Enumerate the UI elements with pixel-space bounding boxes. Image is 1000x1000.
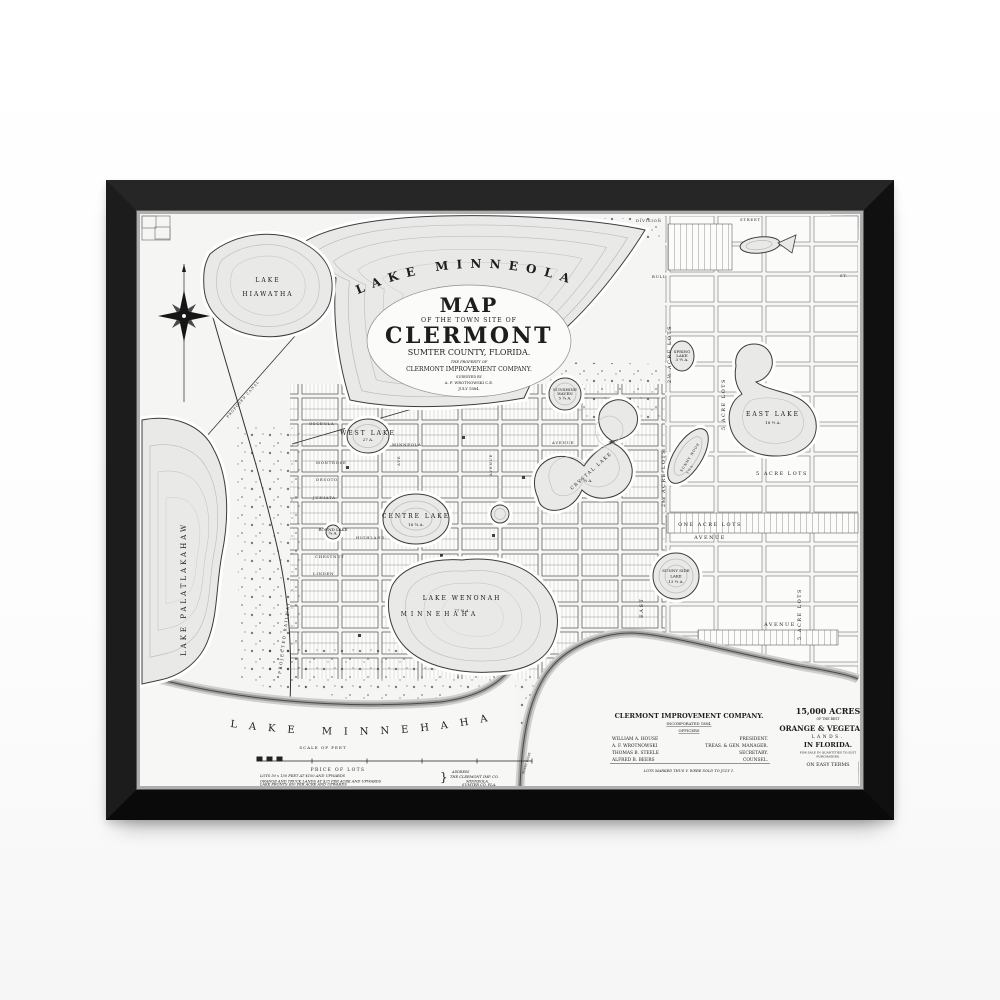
lake-hiawatha-label-1: LAKE: [255, 277, 280, 284]
scale-of-feet-label: SCALE OF FEET: [299, 745, 346, 750]
sunny-side-label-2: LAKE: [670, 574, 682, 579]
company-officers-label: OFFICERS: [678, 728, 699, 733]
price-of-lots-label: PRICE OF LOTS: [311, 768, 366, 773]
address-line-3: SUMTER CO. FLA.: [462, 783, 496, 786]
street-juniata: JUNIATA: [312, 495, 336, 500]
street-division: DIVISION: [636, 218, 662, 223]
officer-title-2: SECRETARY.: [739, 751, 768, 756]
address-label: ADDRESS: [451, 770, 470, 774]
title-surveyor: A. F. WROTNOWSKI C.E.: [444, 380, 493, 385]
lake-hiawatha-label-2: HIAWATHA: [242, 291, 293, 298]
title-surveyed-by: SURVEYED BY: [456, 375, 482, 379]
sunny-side-acres: 13 ½ A.: [668, 579, 684, 584]
street-bull-st: ST.: [840, 273, 848, 278]
lake-wenonah-label: LAKE WENONAH: [423, 595, 502, 602]
west-lake: WEST LAKE 27 A.: [340, 419, 396, 453]
avenue-label-2: AVENUE: [763, 622, 796, 628]
picture-frame: LAKE MINNEOLA LAKE HIAWATHA MAP OF THE T…: [106, 180, 894, 820]
west-lake-acres: 27 A.: [363, 437, 374, 442]
lake-palatlakaha-label: LAKE PALATLAKAHAW: [180, 522, 188, 656]
price-line-3: LAKE FRONTS $50 PER ACRE AND UPWARDS: [259, 783, 347, 787]
sunshine-haven-acres: 5 ¾ A.: [558, 396, 571, 401]
officer-name-1: A. F. WROTNOWSKI: [611, 744, 658, 749]
street-east: EAST: [639, 598, 645, 618]
street-avenue-vertical: AVENUE: [488, 454, 493, 477]
officer-name-0: WILLIAM A. HOUSE: [612, 737, 658, 742]
five-acre-lots-horizontal: 5 ACRE LOTS: [756, 471, 808, 477]
ad-in-florida: IN FLORIDA.: [804, 741, 852, 749]
clermont-map: LAKE MINNEOLA LAKE HIAWATHA MAP OF THE T…: [140, 214, 860, 786]
address-line-1: THE CLERMONT IMP. CO.: [450, 775, 499, 779]
ad-acres: 15,000 ACRES: [796, 706, 860, 716]
sunshine-haven-lake: SUNSHINE HAVEN 5 ¾ A.: [549, 378, 581, 410]
street-minnehaha-avenue: MINNEHAHA: [401, 611, 480, 618]
round-lake-acres: ¾ A.: [328, 531, 337, 536]
sunny-side-label-1: SUNNY SIDE: [662, 568, 690, 573]
division-street-lots: [668, 224, 732, 270]
street-linden: LINDEN: [313, 571, 334, 576]
west-lake-label: WEST LAKE: [340, 430, 396, 437]
crystal-lake-acres: 7 ½ A.: [579, 478, 592, 483]
centre-lake: CENTRE LAKE 16 ¾ A.: [382, 494, 450, 544]
centre-lake-acres: 16 ¾ A.: [408, 522, 424, 527]
ad-for-sale-2: PURCHASERS.: [816, 755, 839, 759]
sunny-side-lake: SUNNY SIDE LAKE 13 ½ A.: [653, 553, 699, 599]
street-division-street: STREET: [740, 217, 761, 222]
lake-hiawatha: LAKE HIAWATHA: [204, 234, 332, 336]
street-highland: HIGHLAND: [356, 535, 385, 540]
price-line-1: LOTS 50 x 150 FEET AT $100 AND UPWARDS: [259, 774, 346, 778]
company-note: LOTS MARKED THUS V. WERE SOLD TO JULY 1.: [643, 769, 735, 773]
price-brace: }: [440, 770, 448, 784]
title-date: JULY 1884.: [457, 386, 480, 391]
street-chestnut: CHESTNUT: [315, 554, 345, 559]
street-montrose: MONTROSE: [316, 460, 347, 465]
officer-title-1: TREAS. & GEN. MANAGER.: [705, 744, 768, 749]
five-acre-lots-vertical-2: 5 ACRE LOTS: [797, 588, 803, 640]
title-map-word: MAP: [440, 293, 499, 317]
avenue-label-1: AVENUE: [693, 535, 726, 541]
spring-lake: SPRING LAKE 3 ½ A.: [670, 341, 694, 371]
east-lake-acres: 18 ½ A.: [765, 420, 781, 425]
title-company: CLERMONT IMPROVEMENT COMPANY.: [406, 366, 532, 373]
street-avenue-town: AVENUE: [551, 440, 574, 445]
street-desoto: DESOTO: [316, 477, 338, 482]
ad-of-best: OF THE BEST: [816, 717, 840, 721]
title-property-of: THE PROPERTY OF: [451, 360, 488, 364]
ad-lands: LANDS.: [812, 735, 845, 740]
officer-name-2: THOMAS B. STEELE: [612, 751, 659, 756]
title-cartouche: MAP OF THE TOWN SITE OF CLERMONT SUMTER …: [367, 285, 571, 397]
officer-title-3: COUNSEL.: [743, 758, 768, 763]
street-minneola: MINNEOLA: [392, 442, 422, 447]
avenue-lots-strip: [698, 630, 838, 645]
map-paper: LAKE MINNEOLA LAKE HIAWATHA MAP OF THE T…: [136, 210, 864, 790]
small-pond: [491, 505, 509, 523]
street-osceola: OSCEOLA: [309, 421, 334, 426]
officer-title-0: PRESIDENT.: [740, 737, 768, 742]
company-name: CLERMONT IMPROVEMENT COMPANY.: [615, 712, 764, 720]
east-lake-label: EAST LAKE: [746, 411, 800, 418]
officer-name-3: ALFRED B. BEERS: [611, 758, 655, 763]
title-town: CLERMONT: [385, 323, 553, 349]
street-minneola-ave: AVE: [396, 456, 401, 467]
two-half-acre-lots-1: 2½ ACRE LOTS: [666, 325, 673, 383]
company-incorporated: INCORPORATED 1884.: [666, 721, 711, 726]
ad-easy-terms: ON EASY TERMS: [806, 762, 849, 768]
title-county: SUMTER COUNTY, FLORIDA.: [408, 348, 531, 357]
one-acre-lots: ONE ACRE LOTS: [678, 522, 742, 528]
spring-lake-acres: 3 ½ A.: [675, 357, 688, 362]
street-bull: BULL: [652, 274, 666, 279]
centre-lake-label: CENTRE LAKE: [382, 513, 450, 520]
five-acre-lots-vertical-1: 5 ACRE LOTS: [721, 378, 727, 430]
ad-orange-vegetable: ORANGE & VEGETABLE: [779, 724, 860, 733]
two-half-acre-lots-2: 2½ ACRE LOTS: [660, 449, 667, 507]
